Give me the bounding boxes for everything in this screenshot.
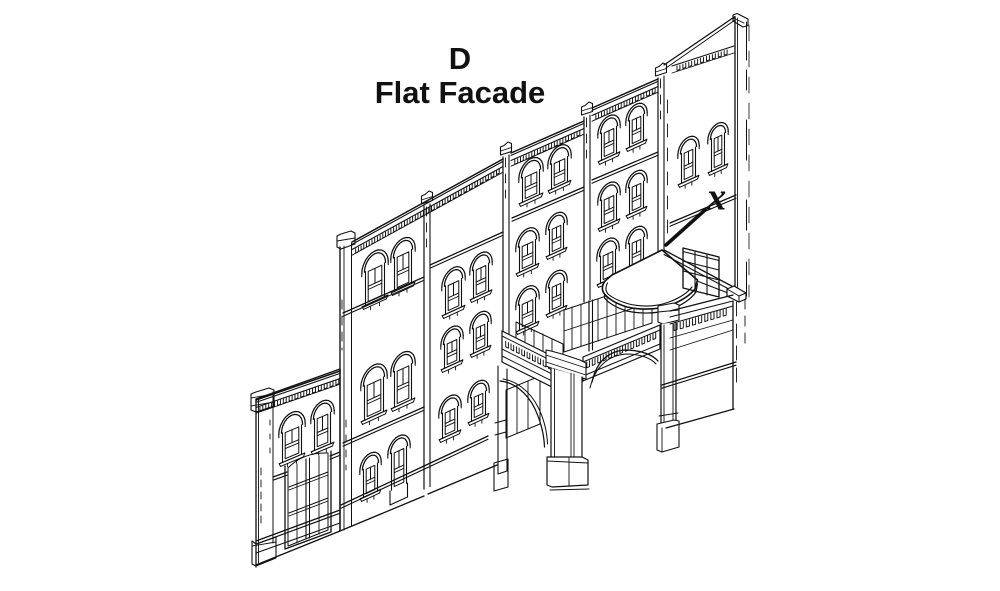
svg-text:x: x (706, 176, 727, 219)
svg-text:Flat Facade: Flat Facade (375, 75, 546, 110)
svg-text:D: D (449, 41, 471, 76)
